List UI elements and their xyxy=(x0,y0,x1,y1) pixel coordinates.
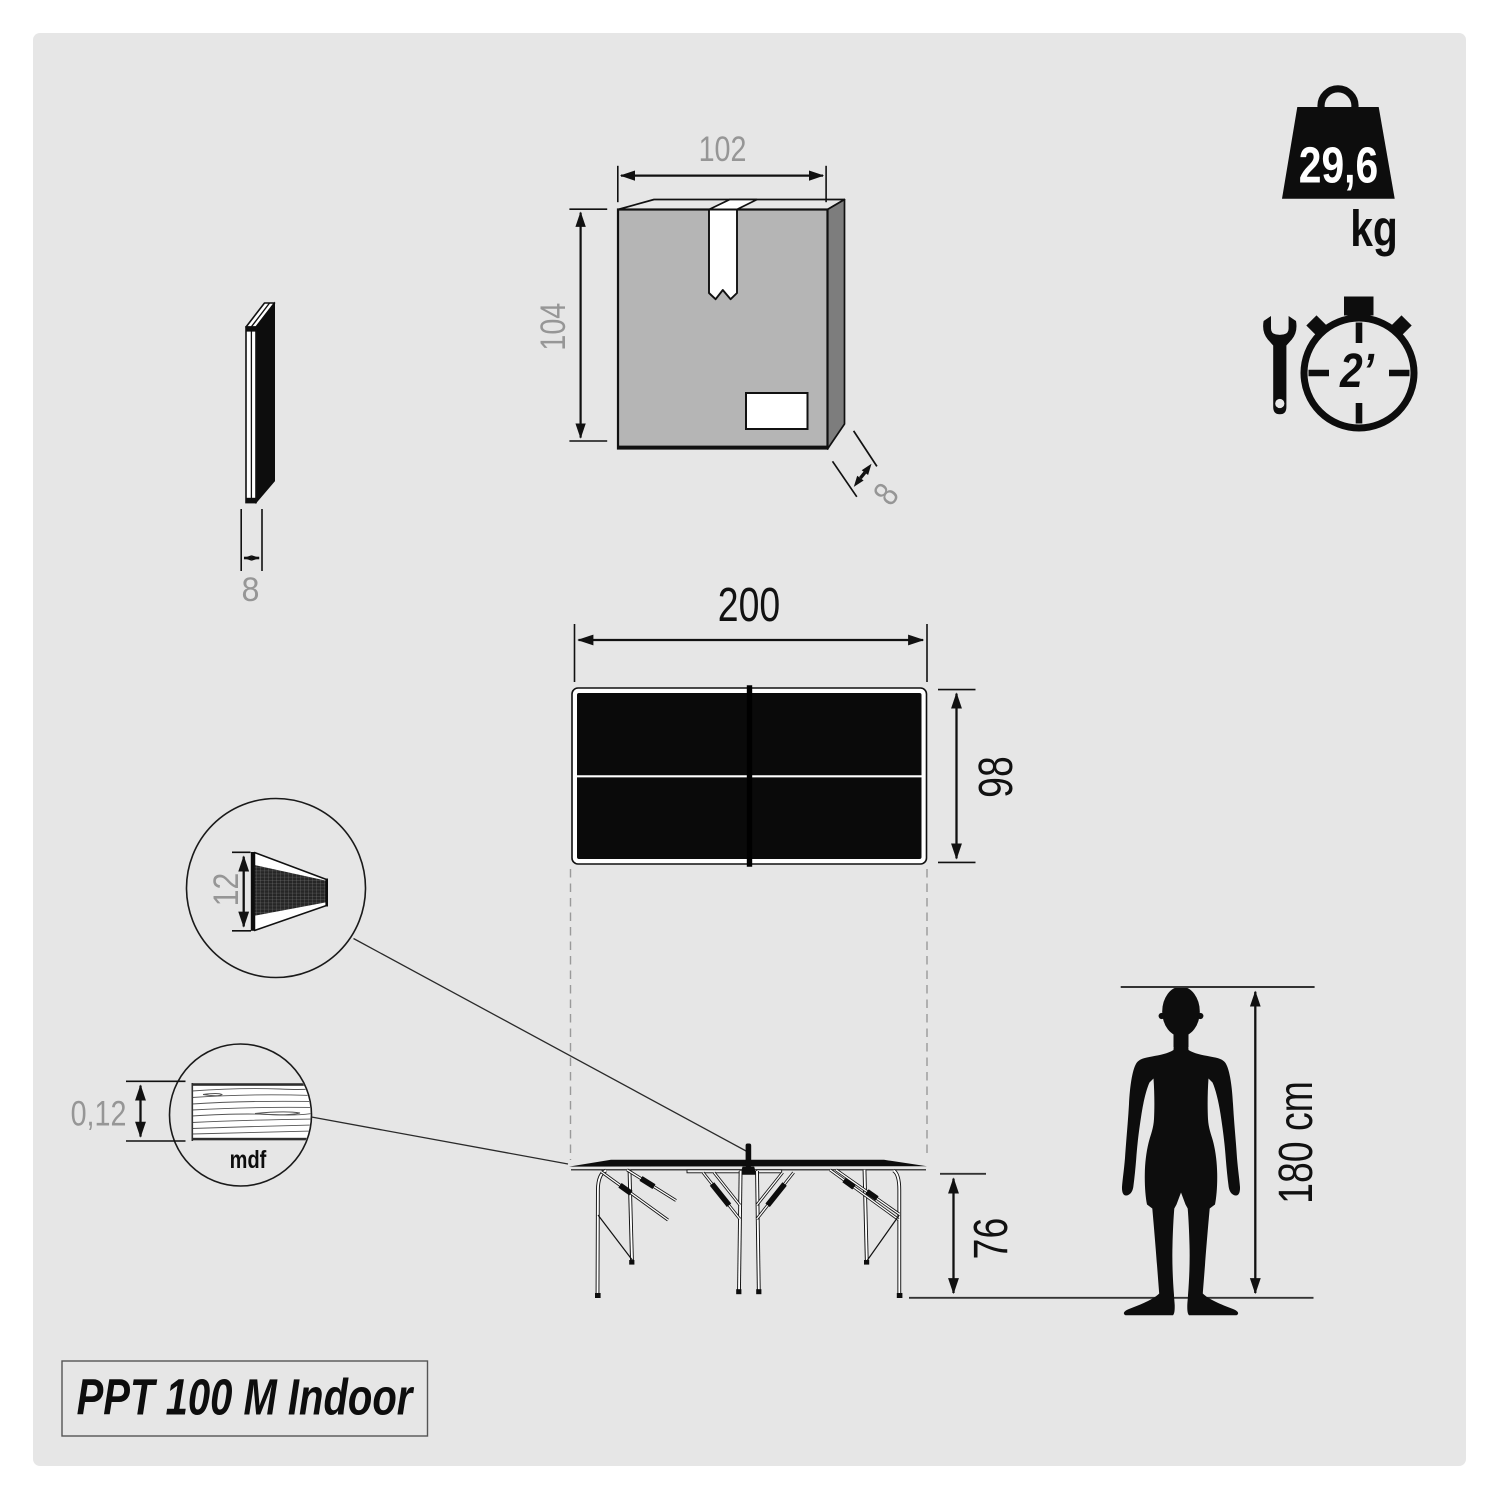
svg-text:102: 102 xyxy=(699,129,747,168)
svg-text:29,6: 29,6 xyxy=(1299,136,1378,193)
svg-text:mdf: mdf xyxy=(230,1146,267,1174)
svg-text:76: 76 xyxy=(965,1218,1019,1260)
svg-text:98: 98 xyxy=(970,756,1024,798)
svg-text:104: 104 xyxy=(533,303,572,351)
svg-text:180 cm: 180 cm xyxy=(1270,1081,1324,1204)
svg-text:PPT 100 M Indoor: PPT 100 M Indoor xyxy=(77,1369,415,1426)
svg-text:12: 12 xyxy=(206,873,246,906)
svg-text:2’: 2’ xyxy=(1339,345,1375,398)
svg-text:8: 8 xyxy=(242,571,260,609)
svg-text:0,12: 0,12 xyxy=(71,1094,127,1133)
svg-text:kg: kg xyxy=(1350,200,1398,257)
svg-text:200: 200 xyxy=(718,579,780,633)
